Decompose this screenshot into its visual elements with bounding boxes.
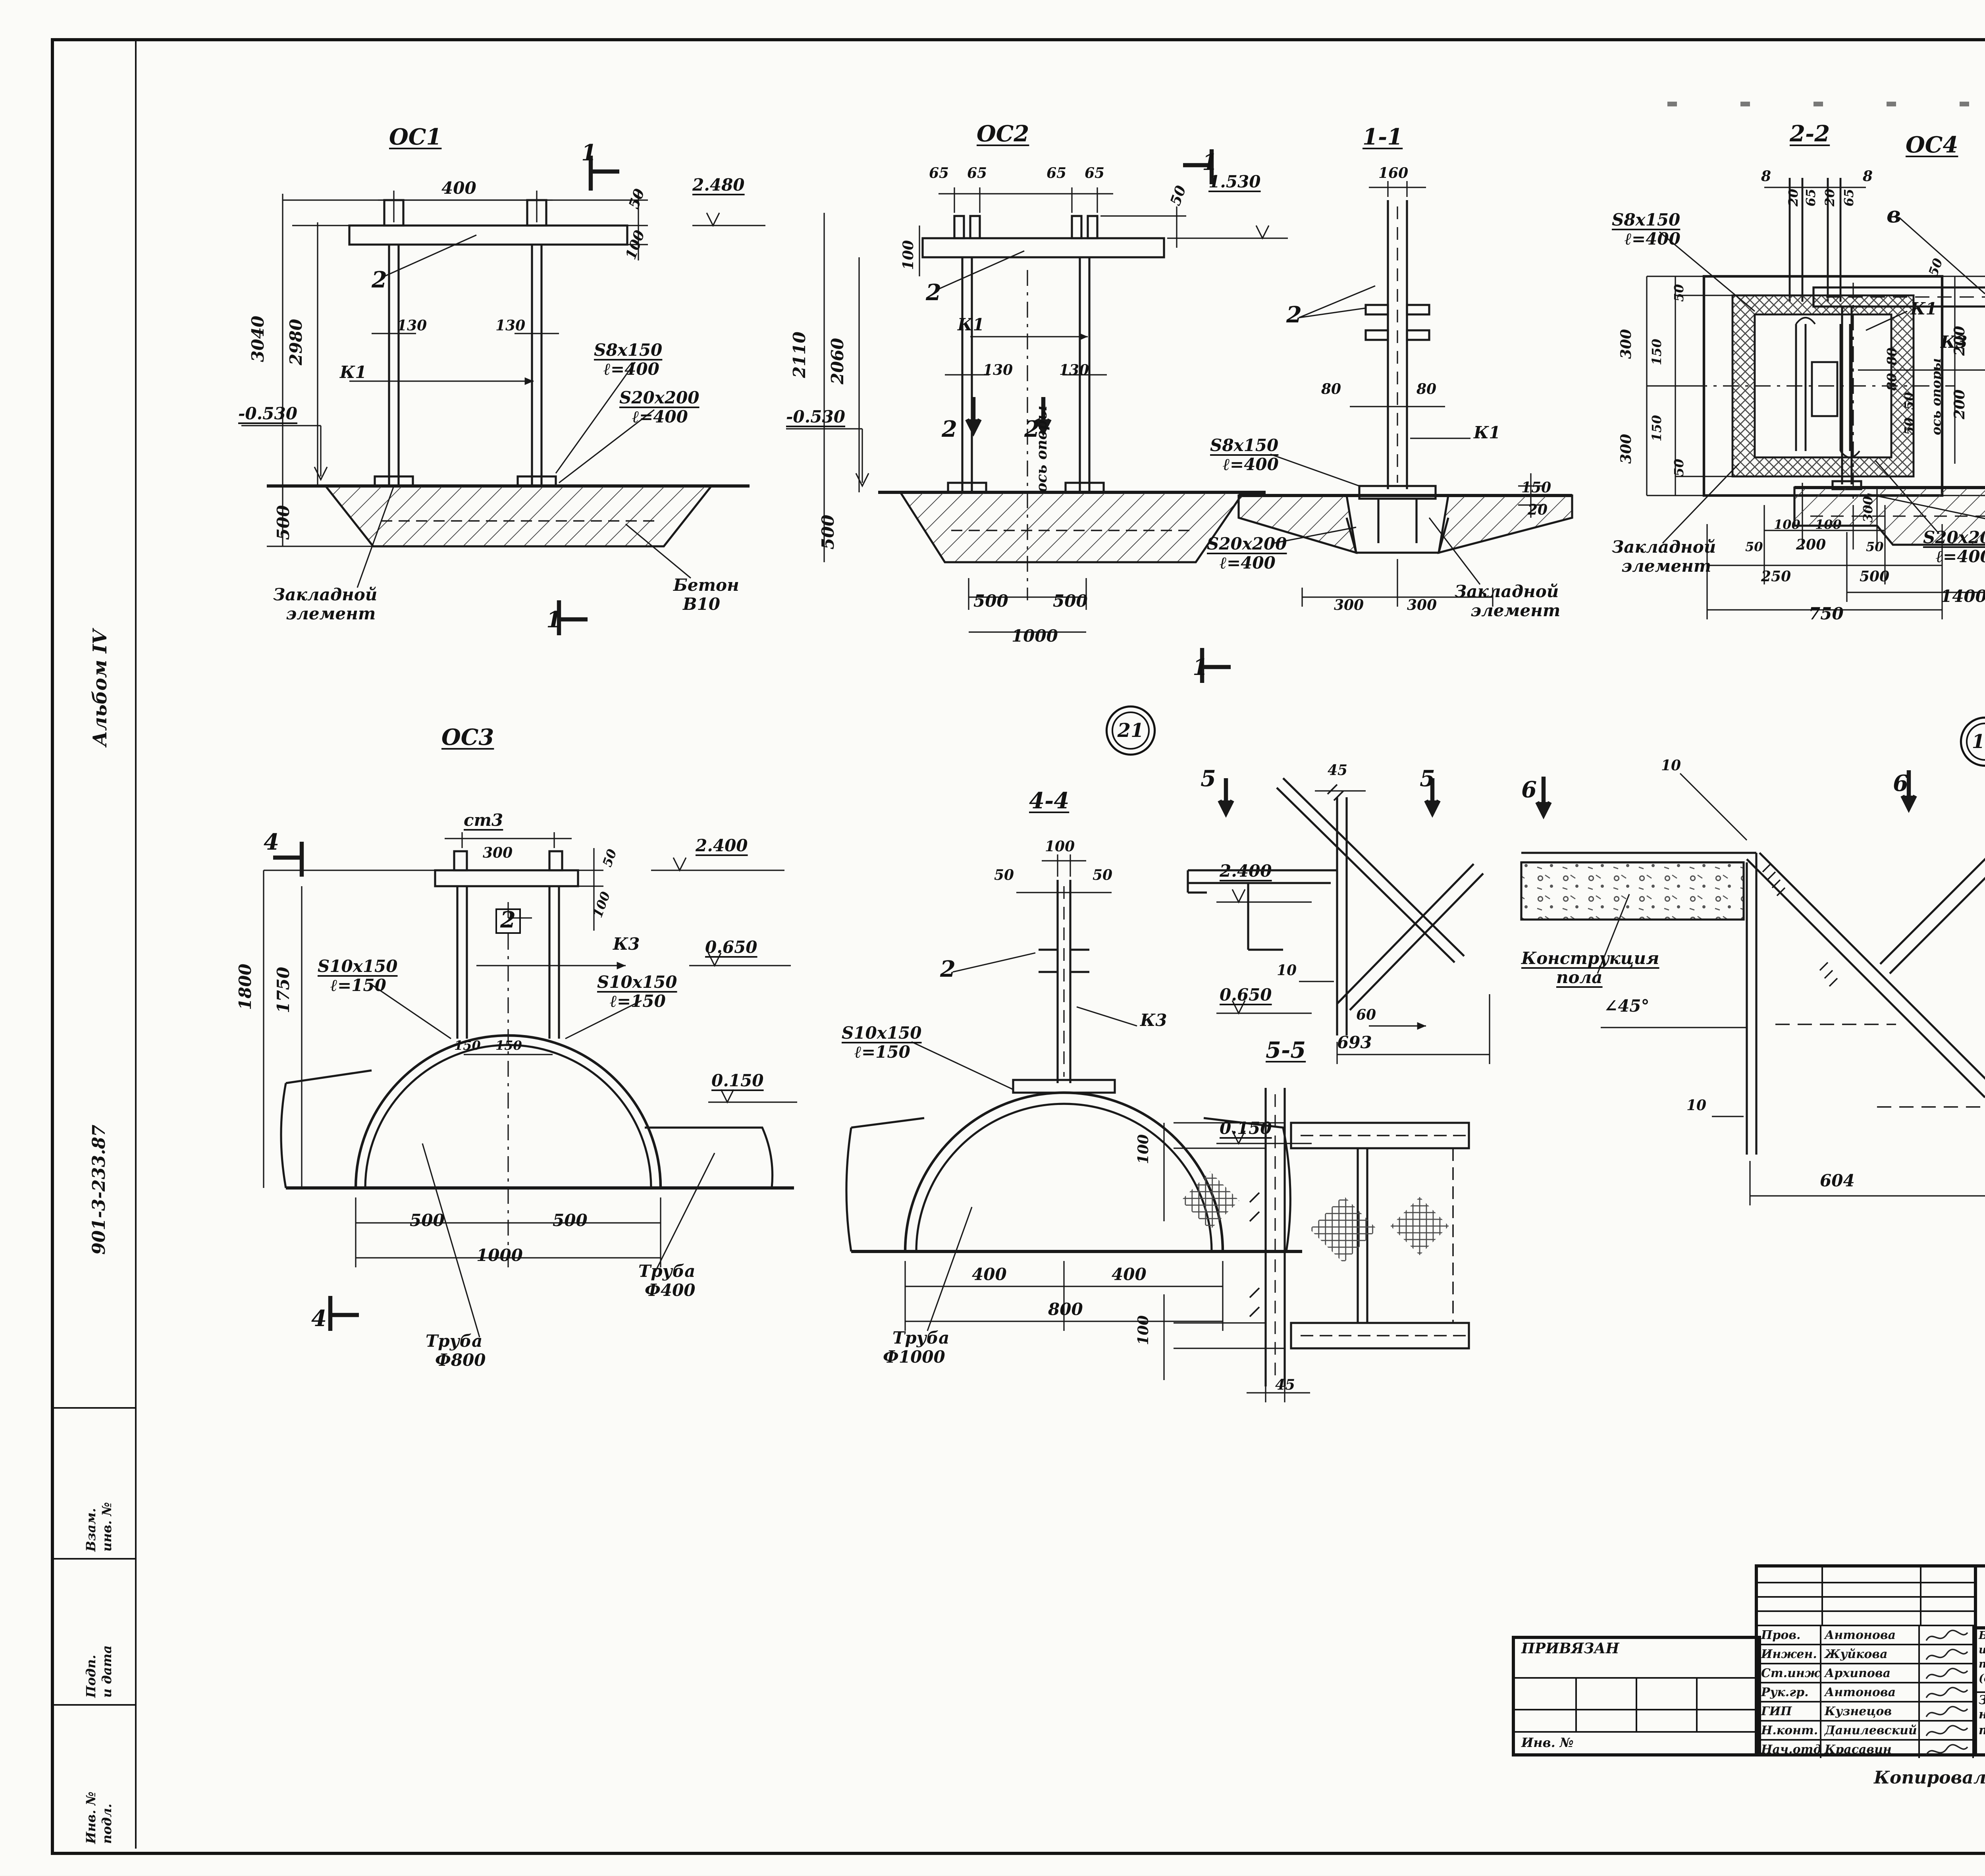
linked-table: ПРИВЯЗАН Инв. № (1512, 1636, 1761, 1756)
dim-label: 300 (1334, 600, 1364, 615)
dim-label: 500 (410, 1213, 445, 1230)
elevation: 0.150 (711, 1074, 764, 1090)
dim-label: ℓ=150 (610, 994, 666, 1011)
dim-label: S10x150 (597, 975, 677, 992)
signature (1920, 1741, 1974, 1758)
dim-label: 800 (1048, 1302, 1083, 1319)
dim-label: 150 (1650, 415, 1663, 442)
dim-label: 65 (1046, 168, 1066, 183)
inventory-label: Инв. № (1521, 1734, 1574, 1750)
dim-label: 50 (1672, 284, 1685, 302)
dim-label: 2110 (792, 332, 809, 378)
dim-label: 50 (1745, 540, 1763, 553)
dim-label: Закладной (273, 588, 377, 604)
dim-label: 400 (972, 1267, 1007, 1284)
dim-label: S20x200 (619, 391, 700, 407)
sheet-title-line: таллические опоры ОС1÷ОС4. (1979, 1723, 1985, 1737)
dim-label: 300 (1407, 600, 1437, 615)
signature (1920, 1626, 1974, 1644)
dim-label: 60 (1356, 1010, 1376, 1024)
dim-label: 2 (1286, 305, 1302, 327)
dim-label: 8 (1761, 172, 1771, 186)
signature-row: Пров.Антонова (1758, 1625, 1974, 1644)
title-block: Пров.АнтоноваИнжен.ЖуйковаСт.инж.Архипов… (1755, 1564, 1985, 1756)
doc-code-cell: ТП 901-3-233.87- КМ (1974, 1568, 1985, 1629)
dim-label: ℓ=400 (603, 362, 659, 379)
elevation: 0.650 (705, 940, 757, 957)
stamp-cell: Взам. инв. № (51, 1409, 135, 1560)
dim-label: ℓ=150 (330, 978, 386, 995)
dim-label: 150 (495, 1039, 522, 1051)
dim-label: 300 (483, 848, 513, 862)
dim-label: 100 (1139, 1315, 1153, 1345)
stamp-label: Взам. инв. № (83, 1499, 114, 1552)
dim-label: 100 (1045, 842, 1075, 856)
dim-label: 130 (495, 321, 525, 335)
signatory-role: Н.конт. (1758, 1722, 1821, 1739)
dim-label: Закладной (1455, 584, 1559, 601)
dim-label: 150 (1650, 339, 1663, 365)
dim-label: 300 (1621, 434, 1636, 464)
dim-label: 2060 (831, 338, 847, 384)
dim-label: Конструкция (1521, 951, 1659, 968)
dim-label: 2 (940, 959, 956, 981)
signatory-name: Антонова (1821, 1683, 1920, 1701)
dim-label: ℓ=400 (1625, 232, 1681, 249)
signatory-role: Нач.отд. (1758, 1741, 1821, 1758)
dim-label: 50 (1672, 459, 1685, 476)
dim-label: К1 (1474, 426, 1500, 442)
dim-label: 100 (591, 890, 612, 919)
signatory-name: Антонова (1821, 1626, 1920, 1644)
signatory-name: Жуйкова (1821, 1645, 1920, 1663)
fold-marks (1667, 102, 1985, 106)
desc-line: (вариант с вихревыми смесителями) (1979, 1672, 1985, 1687)
signature (1920, 1722, 1974, 1739)
dim-label: пола (1556, 970, 1603, 987)
cut-mark: 1 (581, 143, 597, 165)
elevation: 2.480 (692, 178, 745, 195)
elevation: 2.400 (696, 839, 748, 855)
dim-label: S20x200 (1207, 537, 1287, 553)
signature (1920, 1664, 1974, 1682)
dim-label: 2980 (289, 319, 306, 365)
detail-17: 176610Конструкцияпола∠45°10604 (1509, 707, 1985, 1231)
dim-label: 300 (1861, 496, 1874, 523)
view-os1: ОС1114002.48050100304029802130130К1-0.53… (238, 124, 778, 648)
dim-label: S8x150 (1612, 213, 1680, 229)
view-1-1: 1-116028080К1S8x150ℓ=40015020S20x200ℓ=40… (1207, 127, 1604, 699)
dim-label: ось опоры (1037, 406, 1051, 492)
view-title: 5-5 (1266, 1040, 1306, 1062)
signatory-role: Пров. (1758, 1626, 1821, 1644)
stamp-cell: Подп. и дата (51, 1558, 135, 1706)
view-title: ОС4 (1906, 135, 1958, 157)
dim-label: Труба (638, 1264, 695, 1281)
signature-row: Ст.инж.Архипова (1758, 1663, 1974, 1682)
dim-label: 1000 (1012, 629, 1058, 646)
copied-line: Копировал: Антипова (1874, 1760, 1985, 1790)
signature-table: Пров.АнтоноваИнжен.ЖуйковаСт.инж.Архипов… (1758, 1568, 1977, 1753)
dim-label: 45 (1275, 1380, 1295, 1394)
dim-label: 2 (926, 283, 941, 305)
cut-mark: 1 (1193, 657, 1208, 680)
dim-label: Бетон (673, 578, 739, 595)
signature (1920, 1645, 1974, 1663)
view-title: ОС3 (441, 727, 494, 750)
signatory-name: Кузнецов (1821, 1702, 1920, 1720)
signatory-role: Рук.гр. (1758, 1683, 1821, 1701)
cut-mark: 5 (1420, 769, 1435, 791)
signatory-role: Инжен. (1758, 1645, 1821, 1663)
detail-21: 2155451060693 (1096, 699, 1501, 1072)
stamp-label: Инв. № подл. (83, 1791, 114, 1844)
project-description: Блок входных устройств, отстойников и фи… (1974, 1626, 1985, 1693)
dim-label: ℓ=150 (854, 1045, 910, 1062)
cut-mark: 2 (942, 419, 957, 442)
dim-label: 1750 (276, 967, 293, 1013)
dim-label: 130 (983, 365, 1013, 380)
dim-label: 65 (1085, 168, 1104, 183)
dim-label: 45 (1328, 765, 1347, 780)
dim-label: 1400 (1941, 589, 1985, 606)
signature-row: ГИПКузнецов (1758, 1701, 1974, 1720)
node-number: 17 (1966, 723, 1985, 761)
dim-label: К1 (340, 365, 366, 382)
dim-label: ст3 (464, 813, 503, 830)
dim-label: Ф400 (645, 1283, 696, 1300)
dim-label: 80 (1416, 384, 1436, 399)
desc-line: Блок входных устройств, отстойников (1979, 1629, 1985, 1644)
cut-mark: 1 (546, 610, 562, 632)
copied-label: Копировал: (1874, 1768, 1985, 1788)
dim-label: 65 (967, 168, 987, 183)
dim-label: 2 (495, 908, 520, 934)
signature (1920, 1683, 1974, 1701)
dim-label: 300 (1621, 329, 1636, 359)
sheet-title-line: ния переходных площадок. Ме- (1979, 1708, 1985, 1722)
dim-label: 20 (1528, 505, 1548, 519)
dim-label: 400 (441, 181, 476, 198)
dim-label: 10 (1686, 1101, 1706, 1115)
sheet-title-line: Зал фильтров. Схема расположе- (1979, 1693, 1985, 1708)
sheet-title-line: Узел 17. (1979, 1737, 1985, 1752)
cut-mark: 5 (1201, 769, 1216, 791)
signatory-name: Красавин (1821, 1741, 1920, 1758)
dim-label: ℓ=400 (1220, 556, 1276, 573)
dim-label: S10x150 (842, 1026, 922, 1043)
signature-row: Нач.отд.Красавин (1758, 1739, 1974, 1758)
dim-label: 1800 (238, 964, 255, 1010)
desc-line: и фильтров для станции очистки воды (1979, 1644, 1985, 1658)
dim-label: элемент (1621, 559, 1711, 576)
dim-label: 3040 (251, 316, 268, 362)
dim-label: К1 (958, 318, 984, 334)
signatory-role: Ст.инж. (1758, 1664, 1821, 1682)
dim-label: 50 (994, 870, 1014, 885)
view-title: 4-4 (1029, 791, 1069, 813)
dim-label: 500 (821, 515, 838, 549)
dim-label: 100 (1139, 1134, 1153, 1164)
dim-label: 100 (626, 229, 649, 262)
cut-mark: 6 (1893, 773, 1908, 796)
dim-label: 100 (904, 240, 918, 270)
cut-mark: 4 (264, 832, 279, 854)
dim-label: К3 (613, 937, 640, 954)
dim-label: К3 (1941, 335, 1967, 352)
dim-label: 2 (372, 270, 387, 292)
desc-line: производительностью 100 тыс. м3/сутки (1979, 1658, 1985, 1672)
binding-margin-line (135, 38, 137, 1849)
signature-row: Инжен.Жуйкова (1758, 1644, 1974, 1663)
elevation: -0.530 (786, 410, 845, 426)
signature-row: Рук.гр.Антонова (1758, 1682, 1974, 1701)
dim-label: 250 (1761, 572, 1791, 586)
dim-label: Труба (892, 1331, 949, 1348)
stamp-cell: Инв. № подл. (51, 1704, 135, 1850)
dim-label: ℓ=400 (1223, 457, 1279, 474)
dim-label: S8x150 (594, 343, 662, 360)
node-number: 21 (1112, 711, 1150, 750)
dim-label: 50 (600, 847, 618, 868)
dim-label: 130 (1059, 365, 1089, 380)
dim-label: Закладной (1612, 540, 1716, 557)
signature (1920, 1702, 1974, 1720)
linked-label: ПРИВЯЗАН (1521, 1642, 1619, 1658)
dim-label: 130 (397, 321, 427, 335)
signatory-role: ГИП (1758, 1702, 1821, 1720)
dim-label: 500 (276, 505, 293, 540)
dim-label: Ф1000 (883, 1350, 945, 1367)
cut-mark: 6 (1521, 780, 1537, 802)
dim-label: 604 (1820, 1174, 1855, 1190)
dim-label: S8x150 (1210, 438, 1278, 455)
elevation: -0.530 (238, 407, 297, 423)
dim-label: элемент (1470, 603, 1560, 620)
view-os3: ОС34ст3300501002.40018001750S10x150ℓ=150… (238, 727, 810, 1426)
view-os4: ОС43в0.80050160К3464501300-0.5003001400S… (1794, 135, 1985, 659)
stamp-column: Взам. инв. № Подп. и дата Инв. № подл. (51, 1407, 135, 1850)
doc-number-margin: 901-3-233.87 (89, 1125, 110, 1255)
stamp-label: Подп. и дата (83, 1645, 114, 1698)
dim-label: S10x150 (318, 959, 398, 976)
dim-label: 1000 (476, 1248, 523, 1265)
sheet-title-cell: Зал фильтров. Схема расположе- ния перех… (1974, 1691, 1985, 1753)
dim-label: 500 (1053, 594, 1088, 611)
dim-label: Ф800 (435, 1353, 486, 1370)
dim-label: ∠45° (1604, 999, 1650, 1016)
dim-label: В10 (683, 597, 720, 614)
drawing-sheet: 97 Альбом IV 901-3-233.87 Взам. инв. № П… (0, 0, 1985, 1876)
view-title: 1-1 (1363, 127, 1403, 149)
dim-label: элемент (286, 607, 376, 623)
signature-row: Н.конт.Данилевский (1758, 1720, 1974, 1739)
dim-label: 50 (1170, 185, 1191, 208)
dim-label: 65 (929, 168, 949, 183)
dim-label: 500 (973, 594, 1008, 611)
signatory-name: Архипова (1821, 1664, 1920, 1682)
dim-label: Труба (426, 1334, 482, 1351)
dim-label: в (1887, 205, 1901, 227)
view-title: ОС2 (977, 124, 1029, 146)
dim-label: 150 (454, 1039, 481, 1051)
view-title: ОС1 (389, 127, 441, 149)
dim-label: 50 (629, 188, 649, 211)
album-label: Альбом IV (89, 629, 111, 746)
dim-label: 160 (1378, 168, 1408, 183)
dim-label: 80 (1321, 384, 1341, 399)
dim-label: ℓ=400 (632, 410, 688, 426)
signatory-name: Данилевский (1821, 1722, 1920, 1739)
cut-mark: 4 (311, 1309, 327, 1331)
dim-label: 500 (553, 1213, 588, 1230)
dim-label: 10 (1277, 966, 1297, 980)
view-5-5: 5-510010045 (1120, 1040, 1485, 1413)
dim-label: 150 (1521, 483, 1551, 497)
dim-label: 10 (1661, 761, 1681, 775)
